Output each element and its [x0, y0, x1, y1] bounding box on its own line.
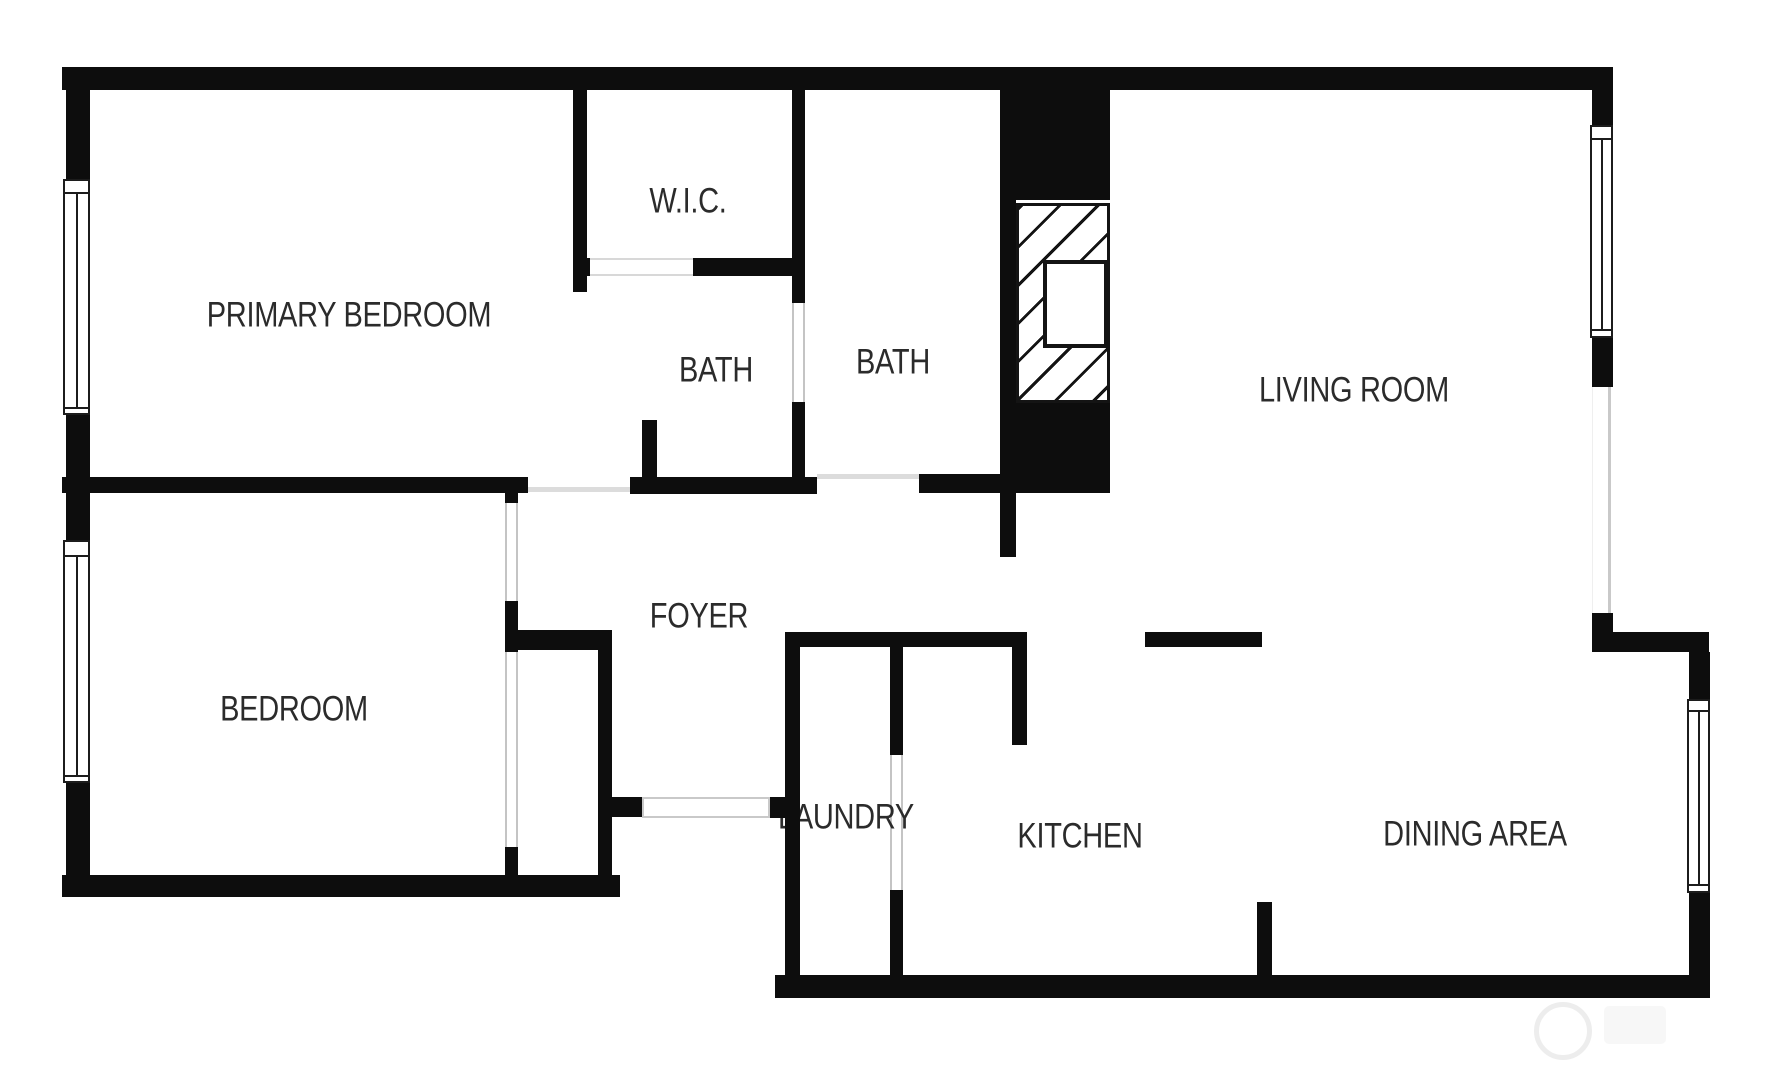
bedrooms-divider-wall: [62, 477, 528, 493]
living-room-side-opening: [1592, 387, 1611, 613]
window-glass-line: [76, 555, 78, 775]
window-glass-line: [1698, 710, 1700, 884]
watermark-circle-icon: [1534, 1002, 1592, 1060]
bath-bottom-wall-left: [630, 477, 817, 494]
entry-jamb-stub: [612, 797, 642, 817]
window-glass-line: [1592, 329, 1611, 331]
laundry-left-wall: [785, 632, 800, 997]
fireplace-insert-icon: [1043, 260, 1108, 348]
foyer-divider-bar: [1145, 632, 1262, 647]
primary-bedroom-window-icon: [63, 179, 90, 415]
bedroom-window-icon: [63, 540, 90, 783]
window-glass-line: [65, 407, 88, 409]
wic-bottom-wall-right: [693, 258, 805, 276]
dining-area-window-icon: [1687, 699, 1710, 893]
window-glass-line: [65, 775, 88, 777]
room-label-kitchen: KITCHEN: [1017, 817, 1142, 857]
window-glass-line: [1689, 884, 1708, 886]
window-glass-line: [76, 192, 78, 407]
bath-divider-door-opening: [792, 303, 805, 402]
room-label-dining-area: DINING AREA: [1383, 815, 1567, 855]
bottom-exterior-wall: [775, 975, 1710, 998]
living-room-window-icon: [1590, 125, 1613, 338]
closet-bottom-stub: [505, 847, 518, 877]
top-exterior-wall: [62, 67, 1613, 90]
closet-sliding-door: [505, 652, 518, 847]
bath-stub-wall: [642, 420, 657, 477]
room-label-primary-bedroom: PRIMARY BEDROOM: [207, 296, 491, 336]
dining-step-wall: [1613, 632, 1709, 652]
primary-bedroom-entry-line: [528, 487, 630, 492]
room-label-wic: W.I.C.: [649, 182, 726, 222]
room-label-living-room: LIVING ROOM: [1259, 371, 1449, 411]
laundry-right-wall-lower: [890, 890, 903, 997]
kitchen-entry-wall: [1012, 647, 1027, 745]
main-entry-door: [642, 797, 770, 818]
chimney-bottom-block: [1000, 403, 1110, 477]
bedroom-right-wall: [598, 630, 612, 878]
bedroom-door-opening: [505, 503, 518, 601]
room-label-bedroom: BEDROOM: [220, 690, 368, 730]
bath-divider-wall-upper: [792, 90, 805, 303]
bath-entry-line: [817, 474, 919, 479]
foyer-kitchen-top-wall: [785, 632, 1027, 647]
wic-door-opening: [590, 258, 693, 276]
bedroom-door-jamb-bottom: [505, 601, 518, 652]
wic-bottom-wall-left: [573, 258, 590, 276]
watermark-logo-icon: [1604, 1006, 1666, 1044]
bedroom-bottom-wall: [62, 875, 620, 897]
kitchen-dining-stub: [1257, 902, 1272, 978]
chimney-top-block: [1000, 88, 1110, 200]
living-right-wall-c: [1592, 613, 1613, 652]
room-label-bath-2: BATH: [856, 343, 930, 383]
window-glass-line: [1601, 138, 1603, 329]
living-right-wall-a: [1592, 90, 1613, 125]
room-label-foyer: FOYER: [650, 597, 748, 637]
dining-right-wall-a: [1689, 652, 1710, 699]
left-exterior-wall-upper: [66, 67, 90, 179]
laundry-right-wall-upper: [890, 647, 903, 755]
room-label-bath-1: BATH: [679, 351, 753, 391]
foyer-living-stub: [1000, 493, 1016, 557]
bedroom-door-jamb-top: [505, 493, 518, 503]
floor-plan: PRIMARY BEDROOM W.I.C. BATH BATH LIVING …: [0, 0, 1770, 1083]
living-right-wall-b: [1592, 338, 1613, 387]
